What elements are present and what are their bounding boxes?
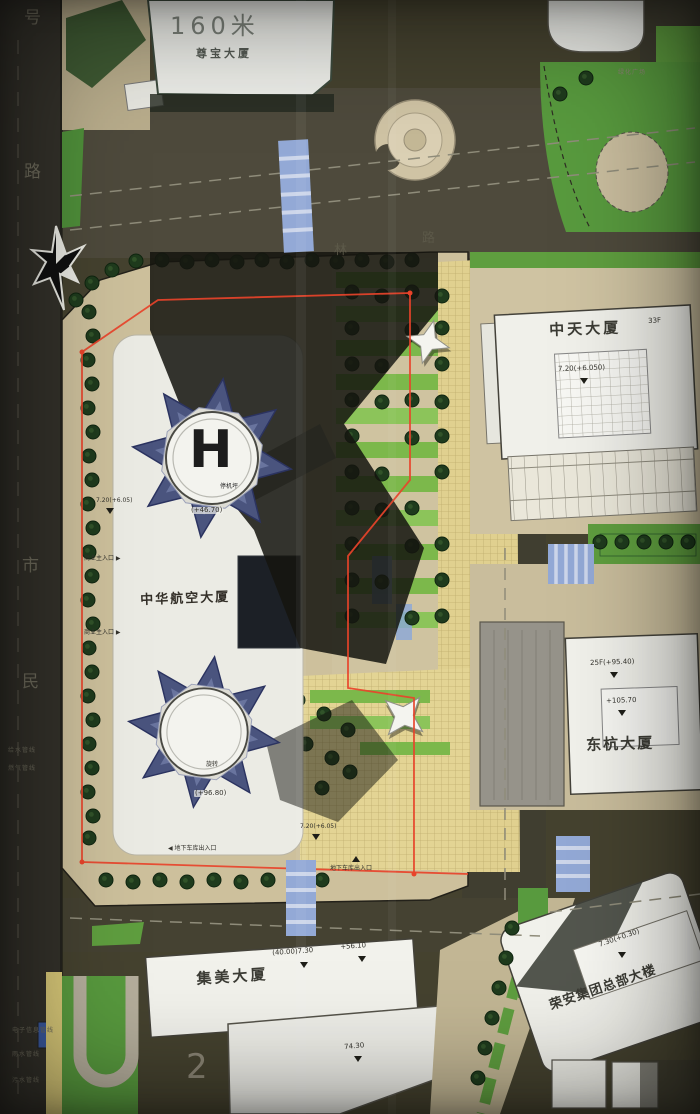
- helipad-label: 停机坪: [220, 484, 238, 490]
- helipad-elevation: (+46.70): [190, 507, 223, 514]
- donghang-elevation: +105.70: [606, 697, 637, 705]
- building-rongan-wing-1: [552, 1060, 606, 1108]
- site-plan-page: 号 路 市 民 林 路 2 160米 尊宝大厦 中天大厦 7.20(+6.050…: [0, 0, 700, 1114]
- road-char-lin: 林: [334, 244, 348, 257]
- entrance-commercial-upper: 商业主入口 ▶: [84, 556, 121, 562]
- street-char-lu: 路: [24, 164, 42, 181]
- elevation-marker: [358, 956, 366, 962]
- fountain-plaza: [375, 100, 455, 180]
- elevation-marker: [312, 834, 320, 840]
- road-char-lu: 路: [422, 232, 436, 245]
- bike-lane: [46, 972, 62, 1114]
- zhongtian-name: 中天大厦: [549, 320, 621, 338]
- elevation-marker: [618, 710, 626, 716]
- verge-zhongtian: [470, 252, 700, 268]
- building-top-right: [548, 0, 644, 52]
- donghang-name: 东杭大厦: [586, 736, 654, 753]
- utility-note-2: 雨水管线: [12, 1052, 40, 1058]
- zunbao-name: 尊宝大厦: [196, 48, 252, 59]
- elevation-marker: [300, 962, 308, 968]
- utility-note-1: 电子信息管线: [12, 1028, 54, 1034]
- entrance-garage-s: 地下车库出入口: [330, 866, 372, 872]
- utility-note-4: 给水管线: [8, 748, 36, 754]
- site-elevation-upper: 7.20(+6.05): [96, 498, 132, 504]
- crosswalk-southeast: [556, 836, 590, 892]
- street-char-min: 民: [22, 674, 40, 691]
- crosswalk-east: [548, 544, 594, 584]
- oval-plaza: [596, 132, 668, 212]
- utility-note-5: 燃气管线: [8, 766, 36, 772]
- elevation-marker: [610, 672, 618, 678]
- tower2-label: 旋转: [206, 762, 218, 768]
- helipad-letter: H: [189, 424, 233, 476]
- utility-note-3: 污水管线: [12, 1078, 40, 1084]
- road-number: 2: [186, 1050, 209, 1084]
- entrance-marker: [352, 856, 360, 862]
- site-elevation-lower: 7.20(+6.05): [300, 824, 336, 830]
- entrance-commercial-lower: 商业主入口 ▶: [84, 630, 121, 636]
- elevation-marker: [106, 508, 114, 514]
- entrance-garage-sw: ◀ 地下车库出入口: [168, 846, 217, 852]
- elevation-marker: [354, 1056, 362, 1062]
- tower2-elevation: (+96.80): [194, 790, 227, 797]
- street-char-shi: 市: [22, 558, 40, 575]
- street-char-hao: 号: [24, 10, 42, 27]
- zhongtian-floors: 33F: [648, 317, 661, 325]
- zhonghua-name: 中华航空大厦: [140, 591, 230, 607]
- elevation-marker: [618, 952, 626, 958]
- elevation-marker: [580, 378, 588, 384]
- zunbao-height: 160米: [170, 14, 260, 38]
- plaza-label: 绿化广场: [618, 70, 646, 76]
